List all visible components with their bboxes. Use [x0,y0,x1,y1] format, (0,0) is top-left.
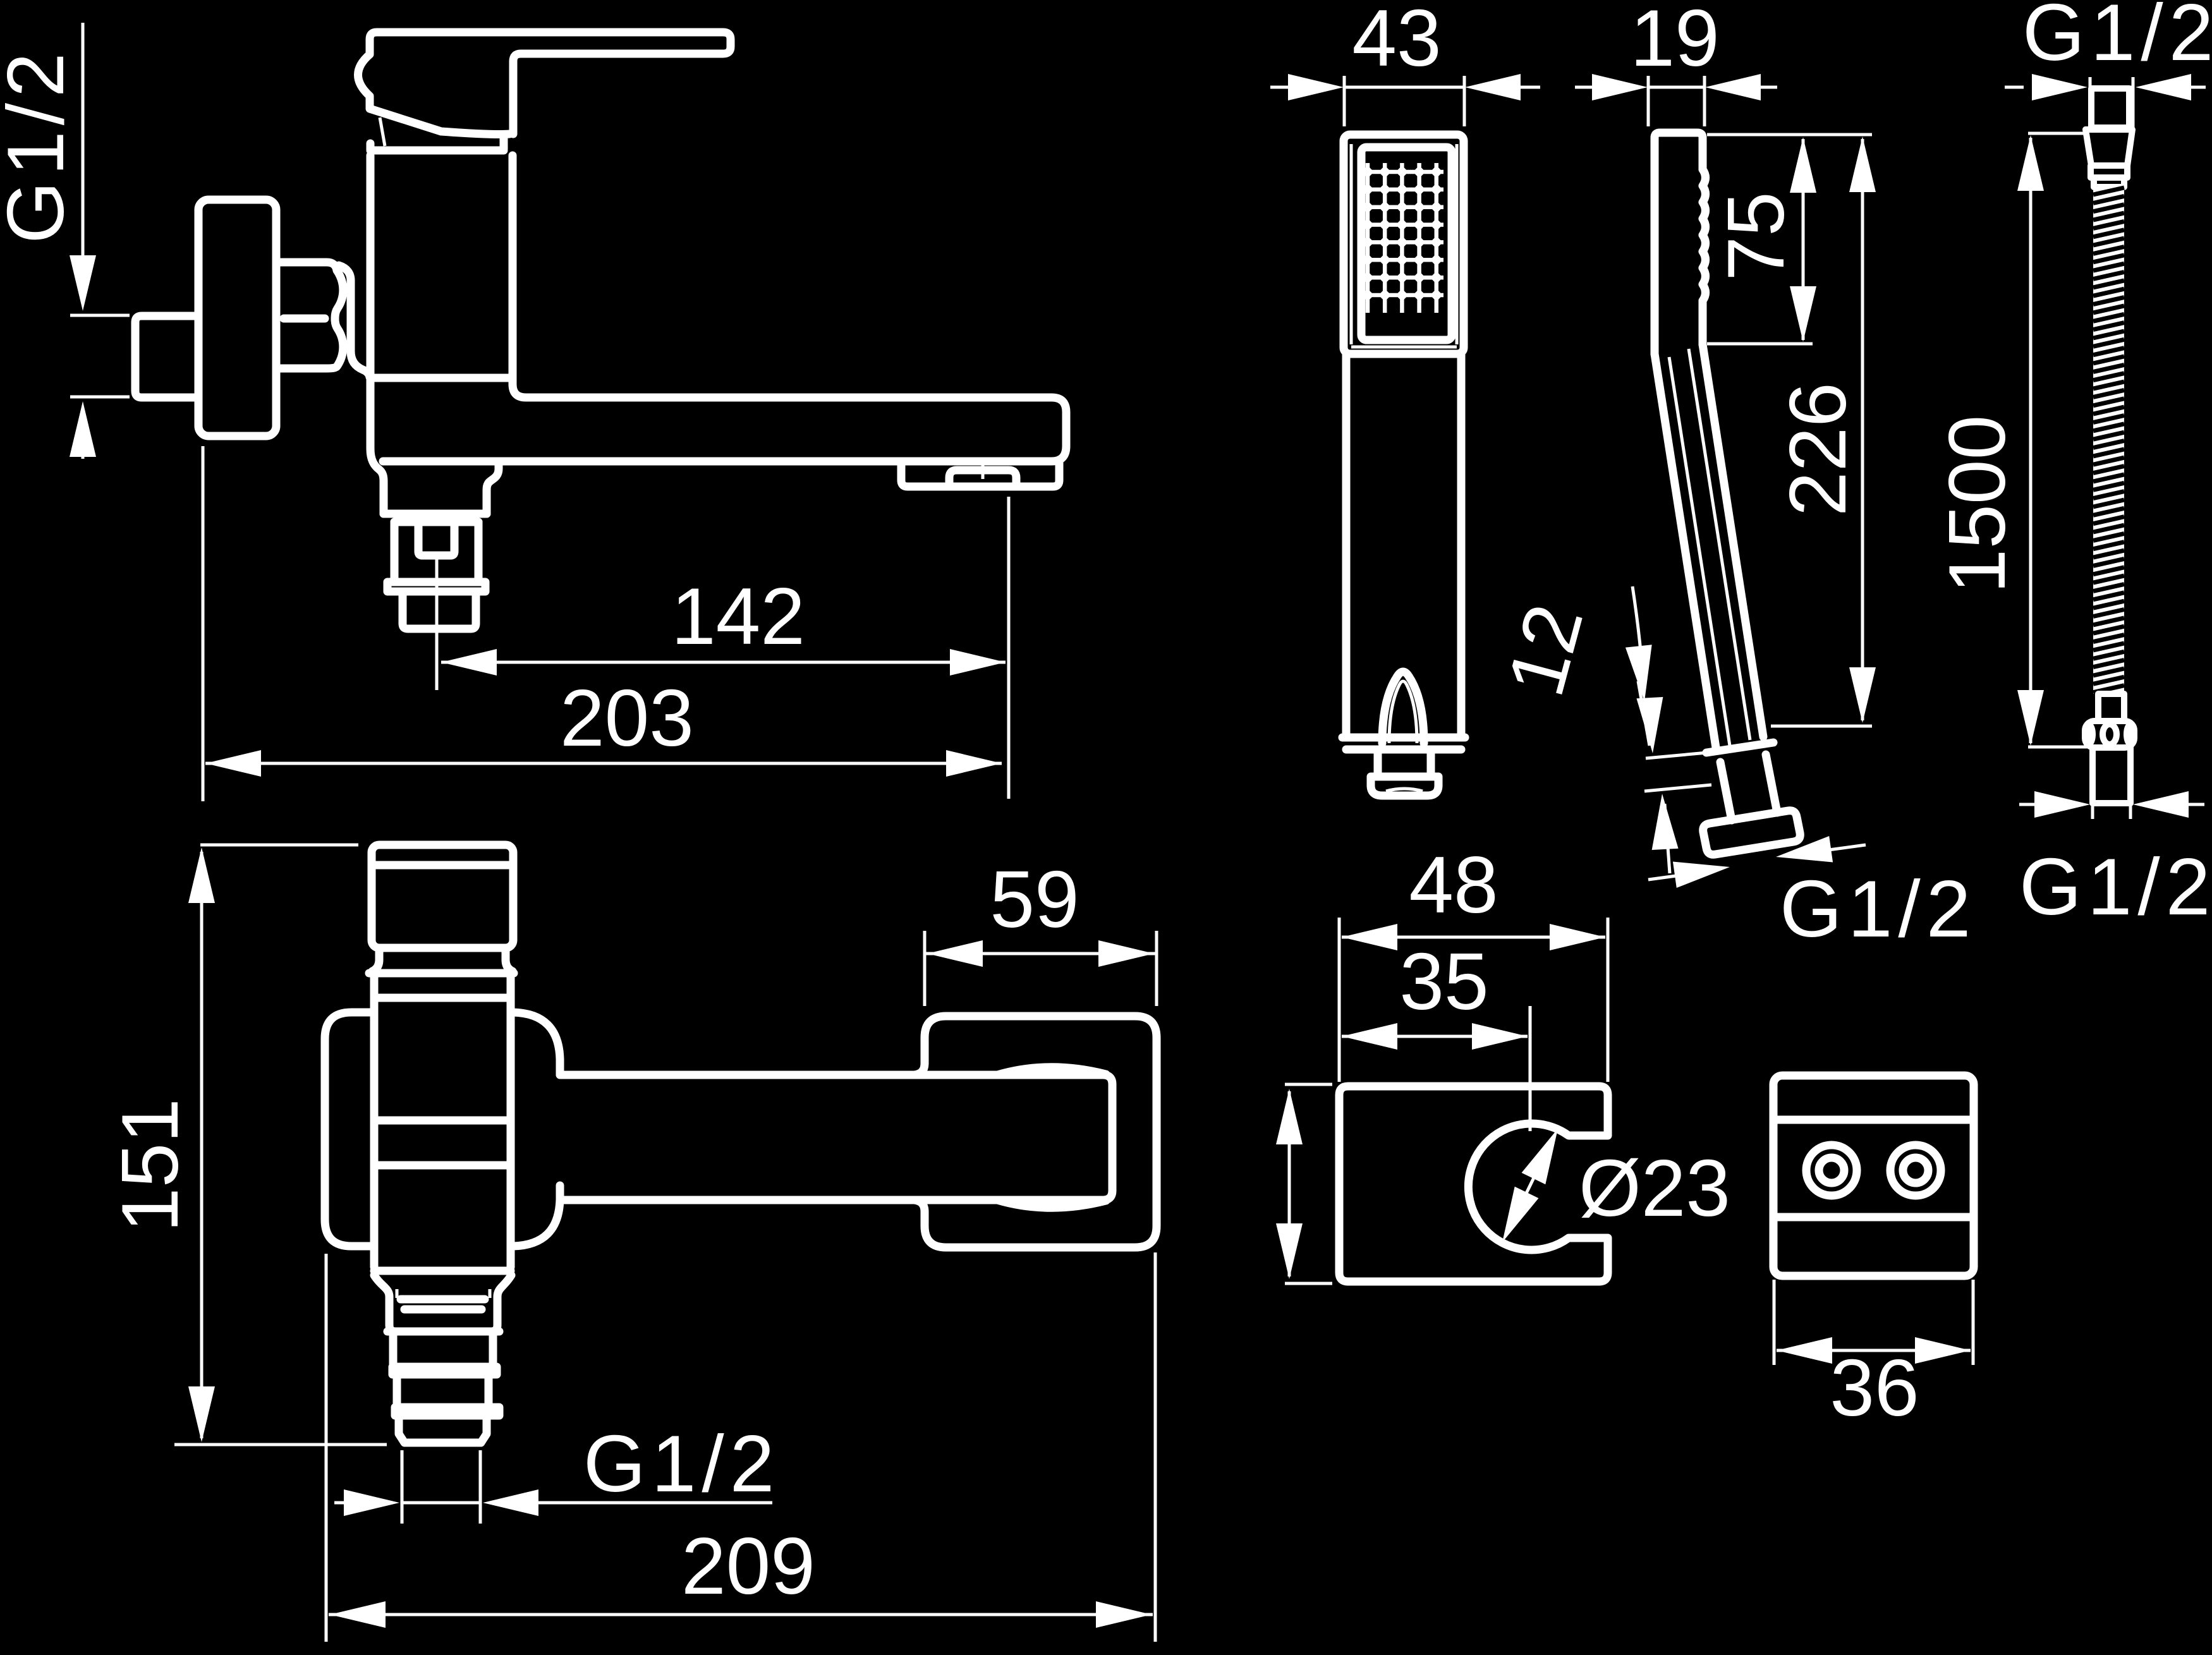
svg-text:59: 59 [990,854,1079,944]
svg-text:G1/2: G1/2 [2022,0,2212,77]
svg-text:G1/2: G1/2 [2019,842,2212,931]
svg-text:G1/2: G1/2 [1780,864,1976,954]
svg-text:G1/2: G1/2 [583,1419,780,1508]
svg-text:209: 209 [681,1521,815,1611]
svg-text:Ø23: Ø23 [1579,1143,1730,1233]
svg-text:75: 75 [1711,191,1801,281]
svg-text:43: 43 [1352,0,1441,83]
svg-text:1500: 1500 [1932,415,2022,594]
svg-text:35: 35 [1399,937,1488,1026]
svg-text:48: 48 [1409,840,1498,930]
svg-text:151: 151 [105,1098,195,1232]
svg-text:226: 226 [1773,382,1863,516]
svg-text:203: 203 [560,673,694,763]
svg-text:142: 142 [671,571,805,661]
svg-text:G1/2: G1/2 [0,47,80,243]
svg-text:19: 19 [1630,0,1719,83]
svg-text:36: 36 [1830,1343,1919,1433]
